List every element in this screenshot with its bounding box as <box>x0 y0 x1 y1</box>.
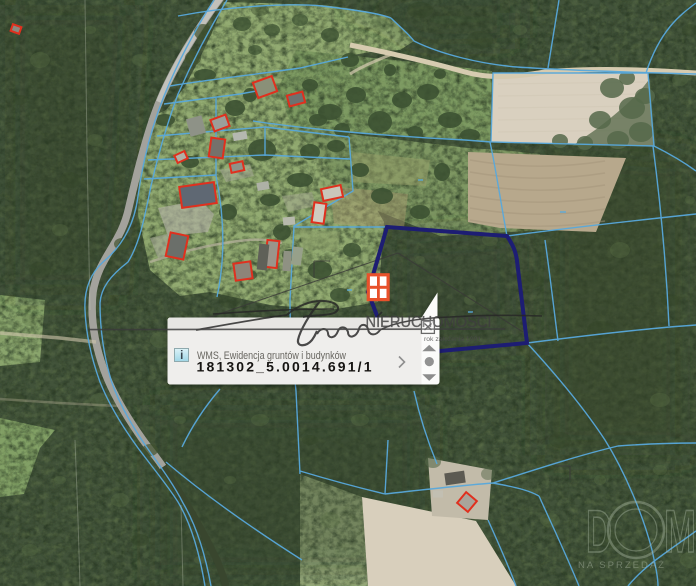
svg-text:D: D <box>586 498 612 565</box>
svg-text:i: i <box>180 350 183 362</box>
svg-text:NA SPRZEDAŻ: NA SPRZEDAŻ <box>578 560 666 571</box>
svg-text:M: M <box>664 498 696 565</box>
svg-text:rok założenia 1991: rok założenia 1991 <box>424 336 481 343</box>
svg-text:181302_5.0014.691/1: 181302_5.0014.691/1 <box>197 359 372 375</box>
